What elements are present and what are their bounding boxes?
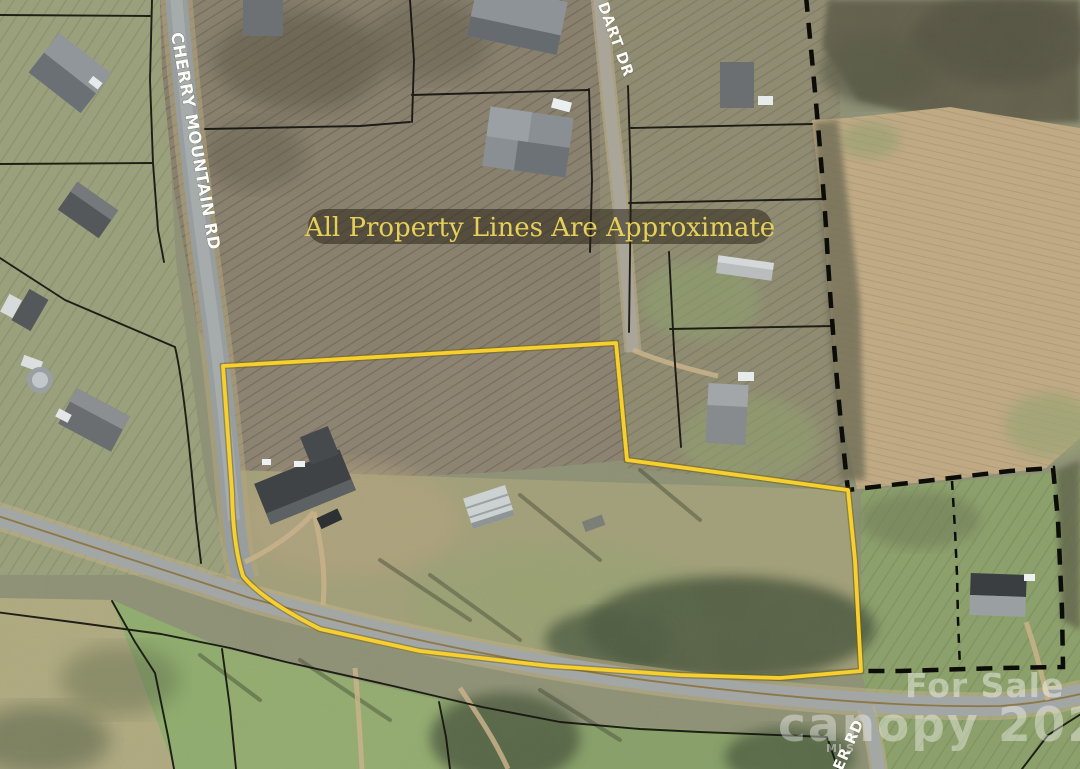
roof-vent — [294, 461, 305, 467]
house — [969, 573, 1026, 617]
building — [243, 0, 283, 36]
watermark-mls: MLS — [826, 742, 855, 755]
banner: All Property Lines Are Approximate — [304, 209, 775, 244]
parcel-line — [0, 15, 150, 16]
house — [720, 62, 754, 108]
house — [705, 383, 748, 445]
aerial-property-screenshot: CHERRY MOUNTAIN RD DART DR ER RD All Pro… — [0, 0, 1080, 769]
house — [482, 106, 574, 177]
pool-center — [32, 372, 48, 388]
aerial-photo: CHERRY MOUNTAIN RD DART DR ER RD All Pro… — [0, 0, 1080, 769]
roof-vent — [262, 459, 271, 465]
parcel-line — [0, 163, 152, 164]
watermark-canopy-2025: canopy 2025 — [778, 698, 1080, 753]
car-white — [758, 96, 773, 105]
car-white — [1024, 574, 1035, 581]
car-white — [738, 372, 754, 381]
banner-text: All Property Lines Are Approximate — [304, 213, 775, 243]
